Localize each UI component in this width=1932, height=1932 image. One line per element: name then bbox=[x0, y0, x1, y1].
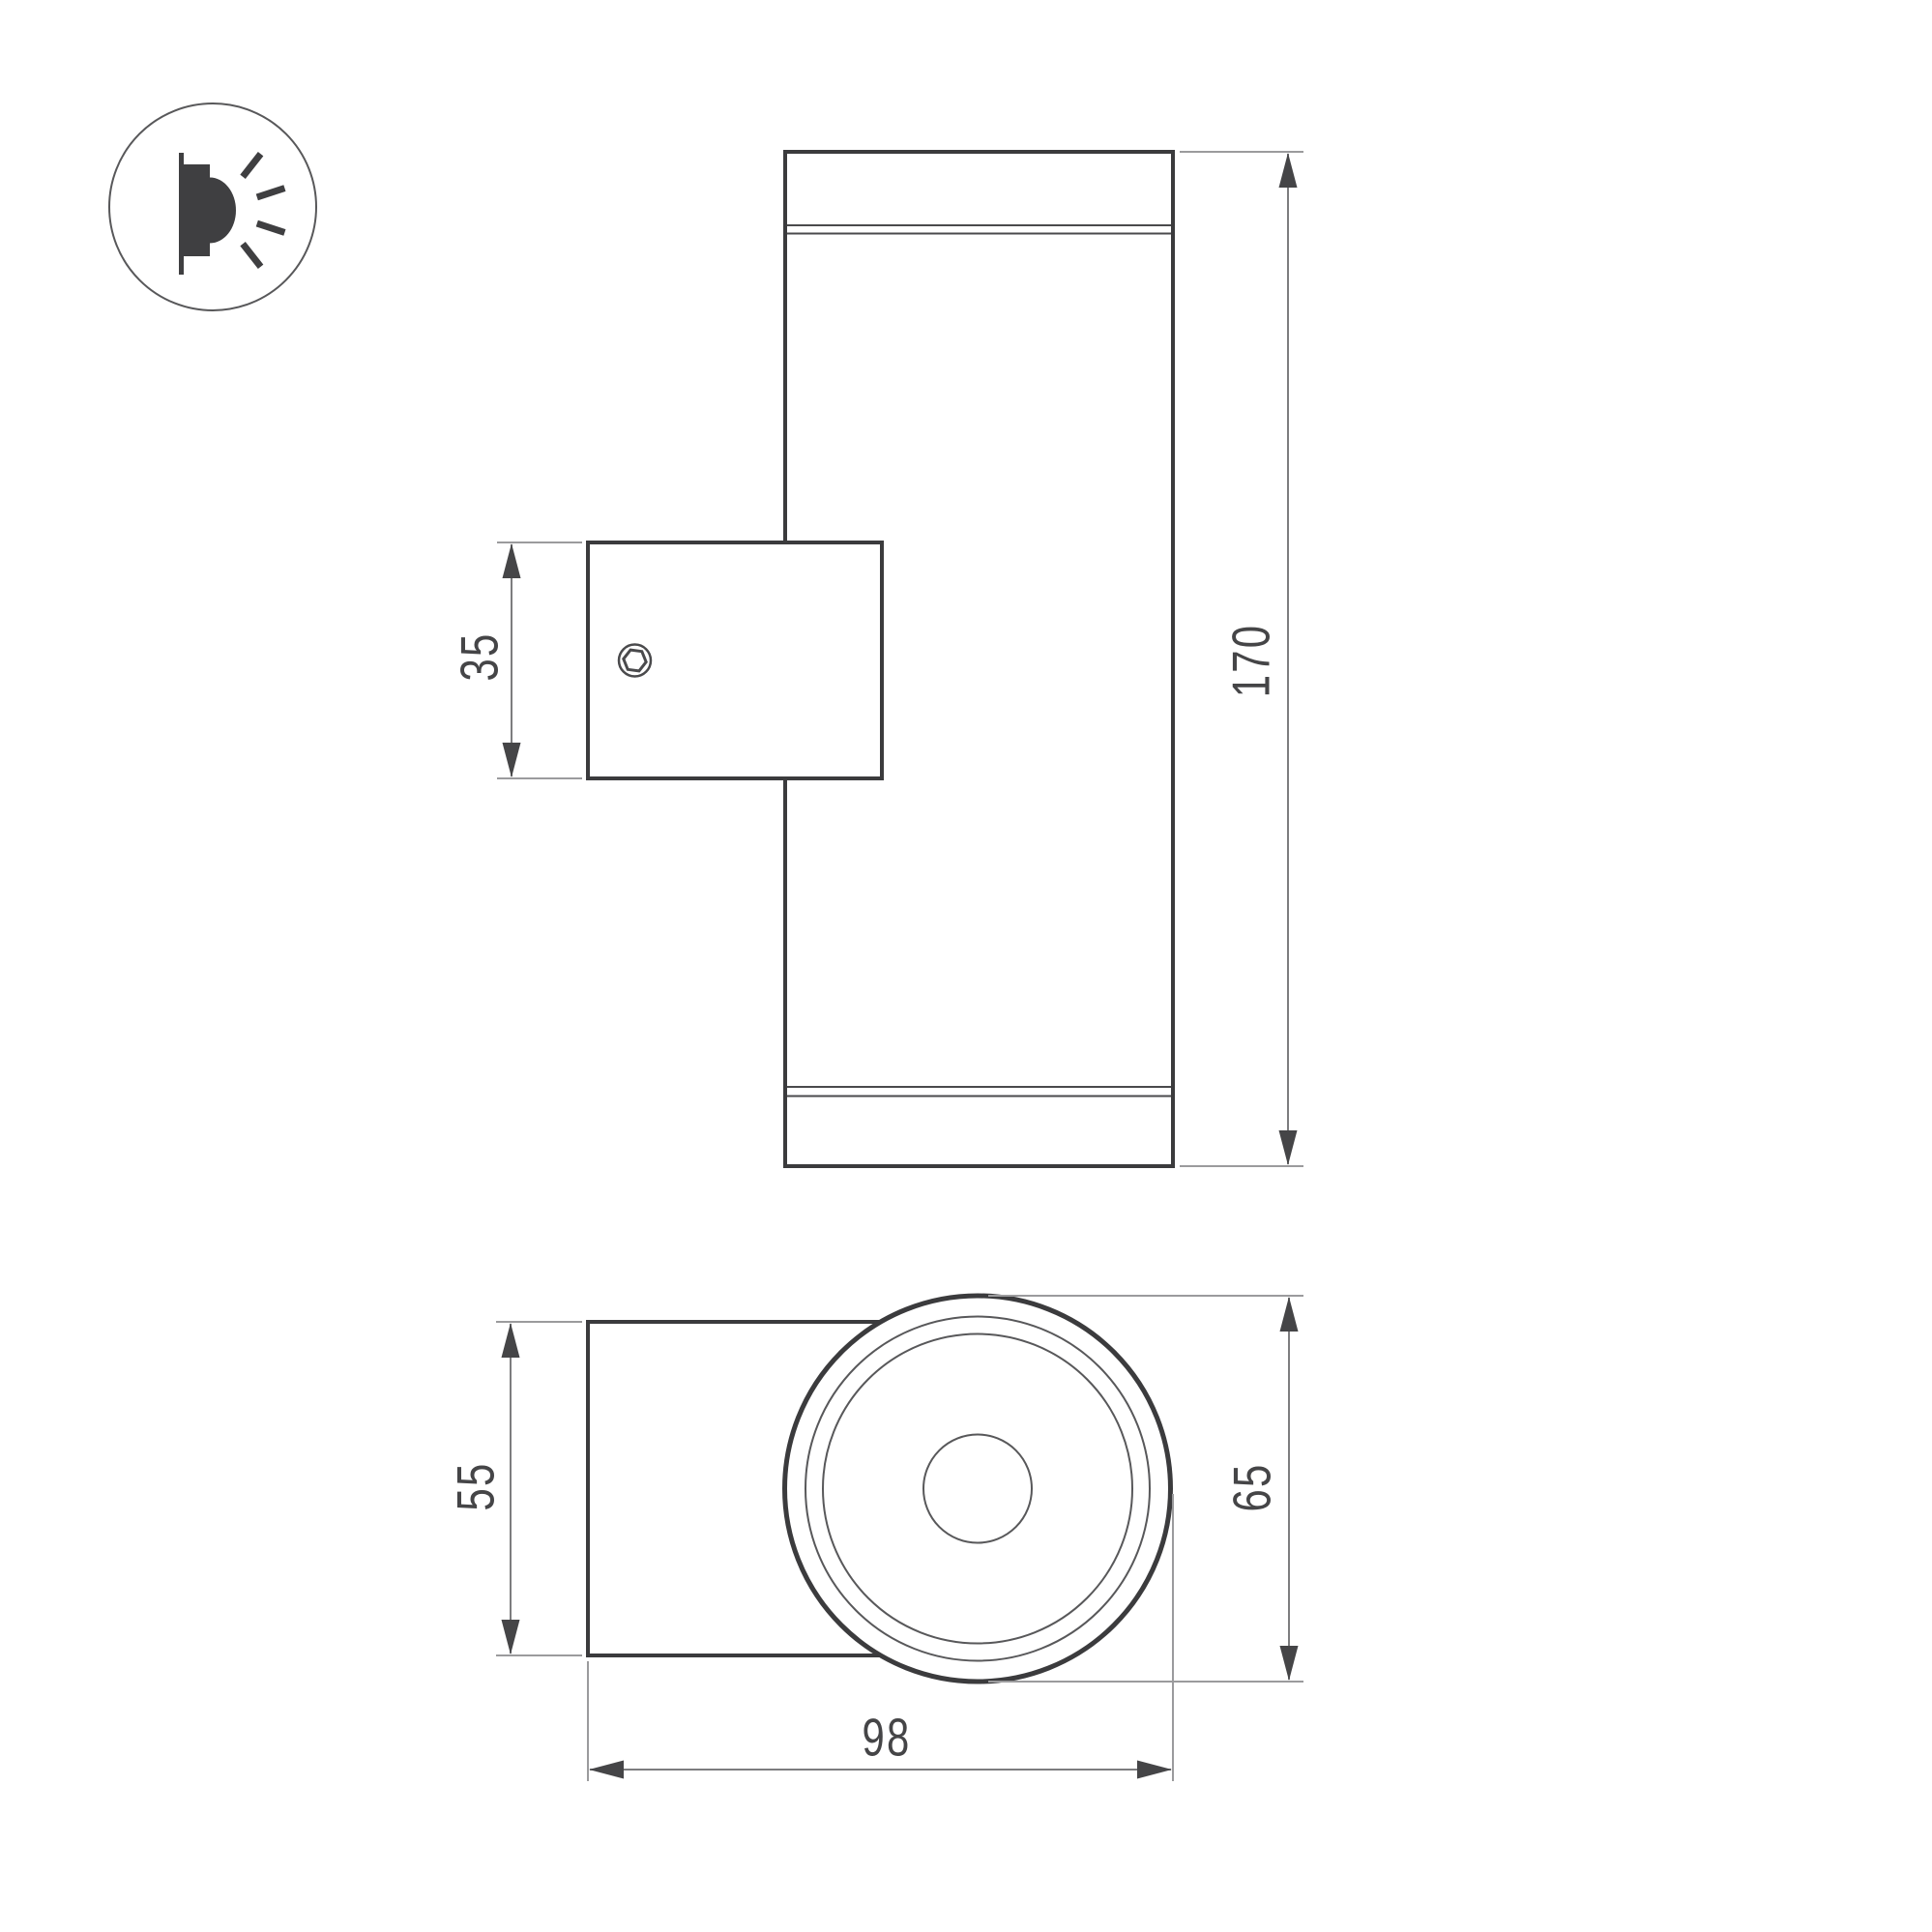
dim-value-body-height: 170 bbox=[1225, 624, 1278, 698]
dim-value-body-diameter: 65 bbox=[1226, 1462, 1279, 1511]
dimension-mount-width bbox=[496, 1322, 582, 1655]
front-view-bracket bbox=[588, 542, 882, 778]
icon-lamp-body bbox=[182, 164, 210, 256]
arrow-up-55 bbox=[502, 1323, 520, 1358]
arrow-down-35 bbox=[503, 743, 521, 777]
arrow-up-35 bbox=[503, 543, 521, 578]
extension-lines-55 bbox=[496, 1322, 582, 1655]
arrow-down-55 bbox=[502, 1620, 520, 1654]
front-view bbox=[588, 152, 1173, 1166]
arrow-right-98 bbox=[1137, 1761, 1172, 1779]
arrow-left-98 bbox=[589, 1761, 624, 1779]
icon-light-halfdome bbox=[210, 178, 236, 244]
arrow-up-170 bbox=[1279, 153, 1298, 188]
top-view-body-outer-circle bbox=[785, 1296, 1171, 1682]
wall-light-emission-icon bbox=[109, 103, 316, 310]
drawing-canvas: 35 170 55 65 98 bbox=[0, 0, 1932, 1932]
icon-light-rays bbox=[243, 154, 284, 267]
arrow-up-65 bbox=[1280, 1297, 1299, 1332]
dim-value-bracket-height: 35 bbox=[454, 631, 507, 681]
dim-value-mount-width: 55 bbox=[450, 1461, 503, 1510]
dimension-bracket-height bbox=[497, 542, 582, 778]
arrow-down-170 bbox=[1279, 1130, 1298, 1165]
dim-value-total-depth: 98 bbox=[862, 1712, 911, 1765]
technical-drawing bbox=[0, 0, 1932, 1932]
arrow-down-65 bbox=[1280, 1646, 1299, 1681]
top-view bbox=[588, 1296, 1171, 1682]
